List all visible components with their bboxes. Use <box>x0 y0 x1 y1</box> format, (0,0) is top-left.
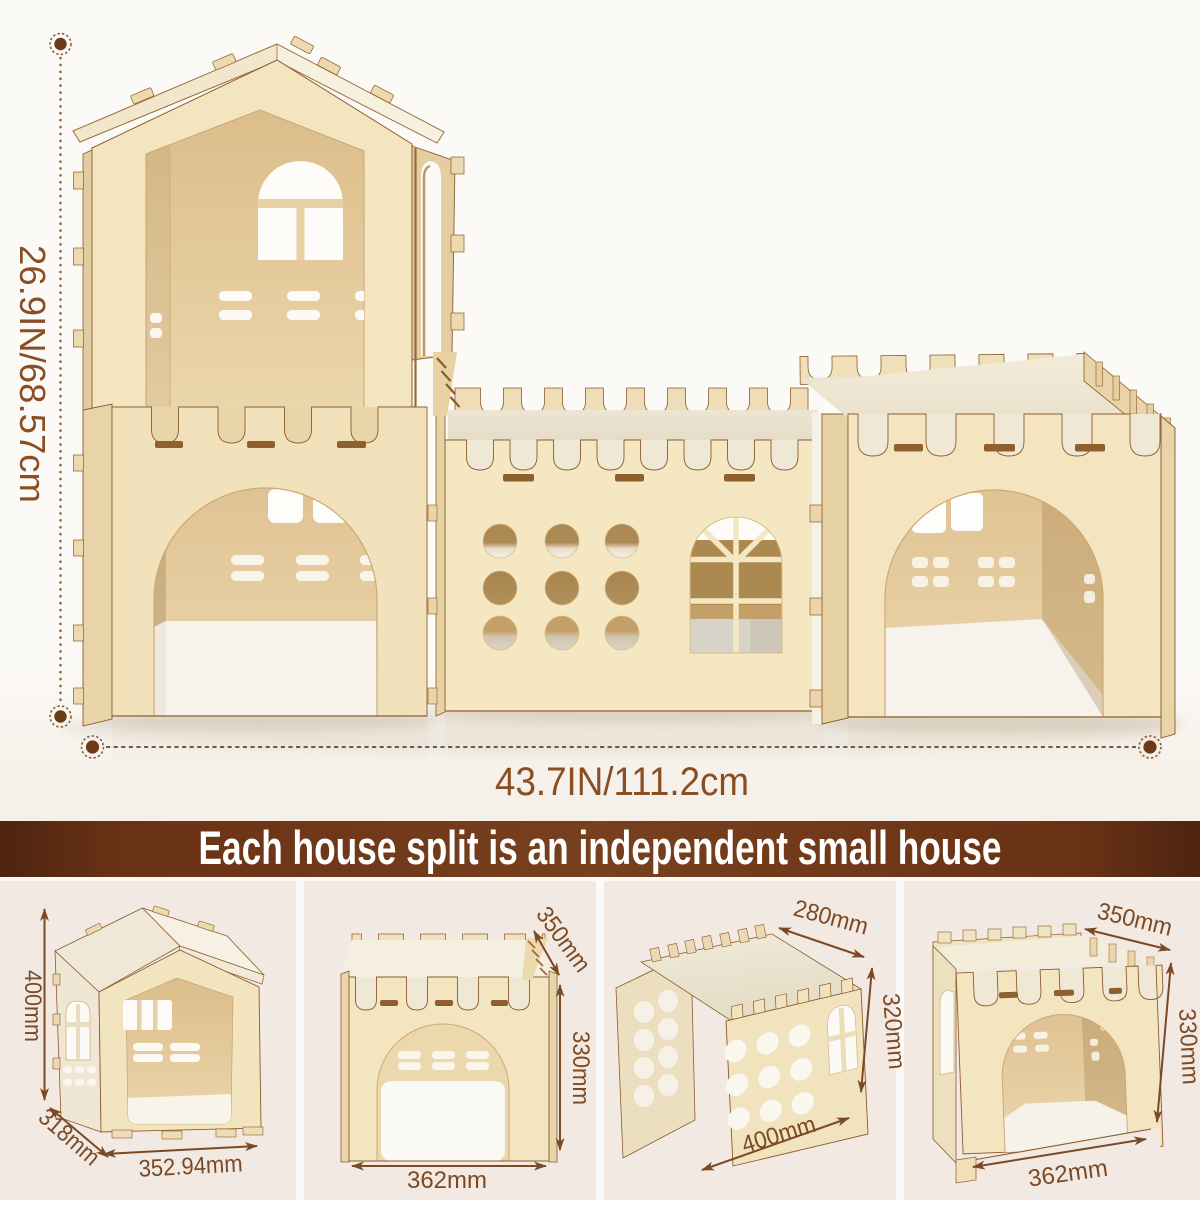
svg-text:352.94mm: 352.94mm <box>138 1150 243 1182</box>
svg-text:330mm: 330mm <box>567 1031 594 1105</box>
svg-text:362mm: 362mm <box>407 1167 487 1194</box>
svg-text:Each house split is an indepen: Each house split is an independent small… <box>199 821 1002 874</box>
svg-text:330mm: 330mm <box>1173 1008 1200 1085</box>
svg-text:26.9IN/68.57cm: 26.9IN/68.57cm <box>12 245 53 503</box>
svg-text:400mm: 400mm <box>19 970 46 1042</box>
svg-text:43.7IN/111.2cm: 43.7IN/111.2cm <box>495 760 749 804</box>
